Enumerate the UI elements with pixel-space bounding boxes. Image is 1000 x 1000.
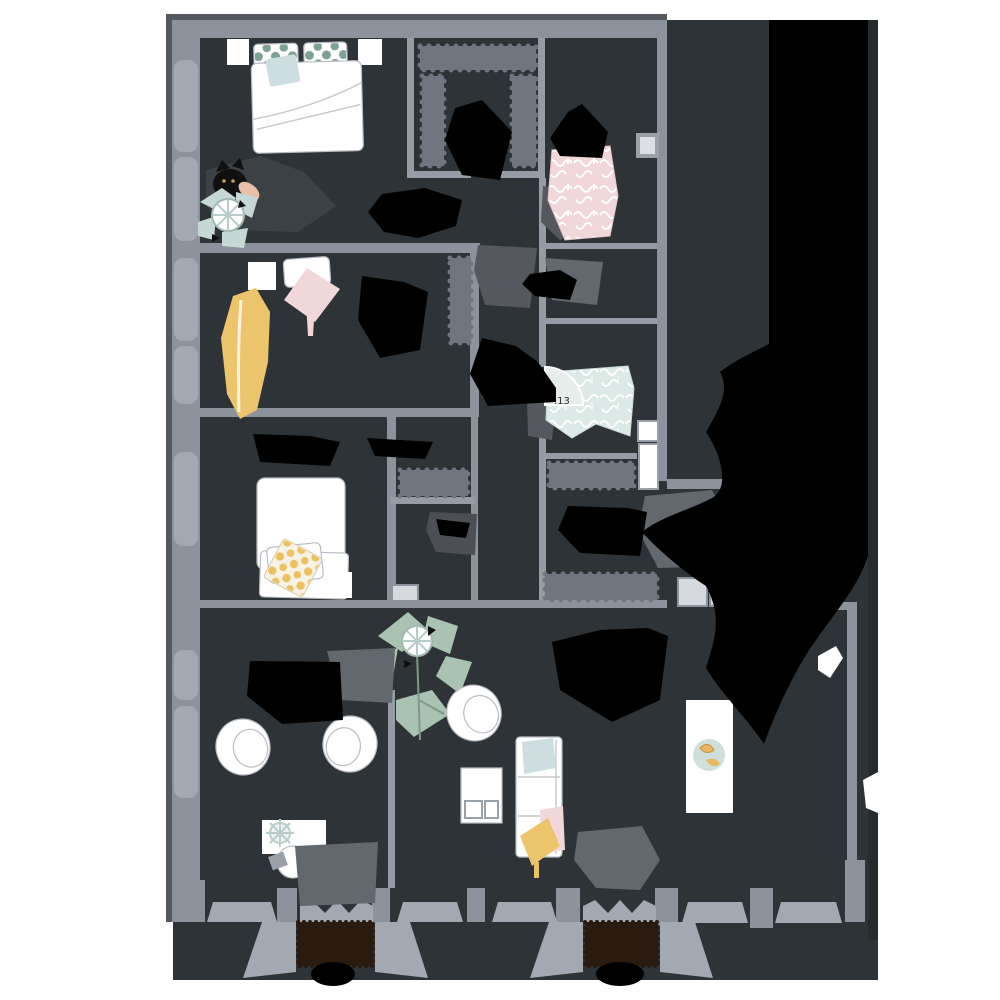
window-bay [207,902,277,922]
bedroom-3 [257,478,352,599]
corner-pillar [845,860,865,922]
wardrobe-top [420,46,536,70]
door-mat [585,922,658,966]
washer [638,421,658,441]
blue-cushion [265,54,301,87]
window [174,452,198,546]
electrical-panel [636,133,659,158]
wall-living-sofa [388,690,395,888]
shadow-blob [311,962,355,986]
window-bay [775,902,842,923]
cat-eye [231,179,235,183]
radiator-bed2 [450,258,471,343]
window-bay [397,902,463,922]
pink-armchair [548,146,618,240]
wardrobe-right [512,76,536,166]
wardrobe-left [422,76,444,166]
window-bay [682,902,748,923]
wall-wc-bottom [545,318,657,324]
panel-door [640,137,655,154]
window [174,650,198,700]
wall-closet-right [538,38,545,178]
radiator-bath [549,463,634,488]
window [174,258,198,341]
floor-plan-svg: .13 [0,0,1000,1000]
side-desk [461,768,502,823]
balcony-door-reveal [583,900,656,922]
pink-chair-room [541,146,618,240]
wall-right-top [539,243,667,249]
window-bay [492,902,557,922]
wall-right-lower [847,610,857,893]
room-number-label: .13 [554,396,570,407]
window [174,60,198,152]
shadow-blob [295,842,378,906]
nightstand [326,572,352,598]
window [174,157,198,241]
wall-main-vertical [657,22,667,481]
radiator-hall [545,574,657,600]
wall-bath-bottom [541,453,637,459]
plate [693,739,725,771]
wall-bed1-bed2 [172,243,480,253]
top-wall-shadow [166,14,667,21]
corner-pillar [172,880,205,922]
nightstand [227,39,249,65]
pillar [750,888,773,928]
sofa-cushion-blue [522,738,556,774]
door-mat [298,922,373,966]
cushion-tassel [534,862,539,878]
fan-rays [266,819,294,847]
floor-plan-page: .13 [0,0,1000,1000]
left-wall-shadow [166,20,173,922]
window [174,346,198,404]
nightstand [248,262,276,290]
cat-eye [222,179,226,183]
shadow-blob [474,245,537,308]
window [174,706,198,798]
pillar [277,888,297,922]
pillar [556,888,580,922]
nightstand [358,39,382,65]
sofa [516,737,565,878]
wall-corridor-left-lower [471,408,478,608]
wardrobe-nook [400,470,468,496]
pillar [467,888,485,922]
dryer [639,444,658,489]
top-wall [172,20,667,38]
nook-door [392,585,418,601]
double-bed [251,42,364,154]
wall-closet-left [407,38,414,178]
shadow-blob [596,962,644,986]
